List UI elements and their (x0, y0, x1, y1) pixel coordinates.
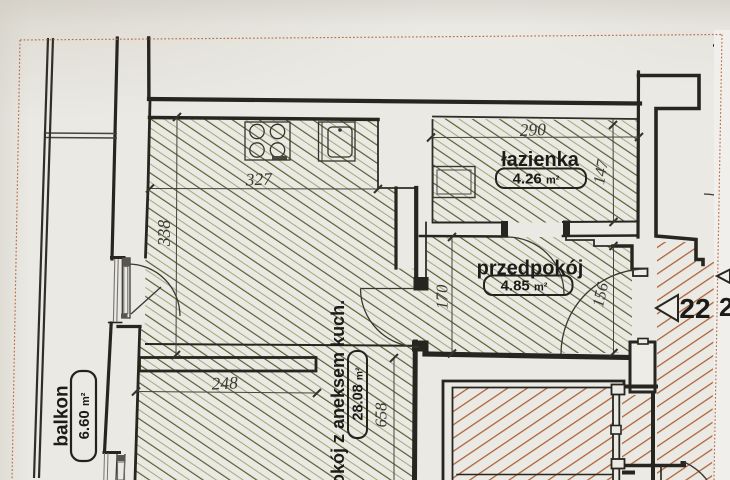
svg-text:22: 22 (679, 293, 710, 324)
svg-text:170: 170 (433, 284, 452, 310)
svg-text:pokój z aneksem kuch.: pokój z aneksem kuch. (328, 300, 348, 480)
svg-text:658: 658 (372, 402, 391, 428)
svg-text:338: 338 (154, 220, 174, 248)
svg-text:248: 248 (211, 372, 239, 393)
svg-text:2: 2 (719, 292, 730, 322)
svg-text:290: 290 (519, 119, 546, 140)
svg-text:327: 327 (244, 169, 273, 190)
svg-text:28.08 m²: 28.08 m² (351, 367, 367, 421)
svg-text:balkon: balkon (52, 385, 73, 446)
